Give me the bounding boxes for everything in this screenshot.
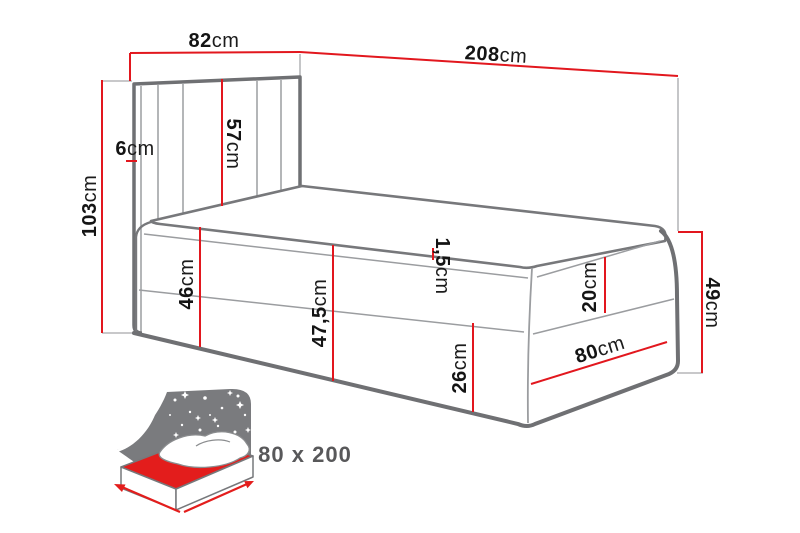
dim-seat-height-head-unit: cm [176,259,198,287]
dim-side-thickness-label: 6cm [115,139,154,159]
dim-total-height-value: 103 [79,202,101,237]
dim-mattress-band-unit: cm [579,262,601,290]
dim-total-length-label: 208cm [464,43,528,67]
dim-base-height-unit: cm [449,343,471,371]
dim-footboard-height-value: 49 [701,278,723,301]
dim-seat-height-foot-value: 47,5 [309,306,331,347]
dim-headboard-width-unit: cm [212,30,240,52]
dim-base-height-value: 26 [449,370,471,393]
dim-seat-height-head-value: 46 [176,286,198,309]
dim-total-height-label: 103cm [80,175,100,238]
corner-edge [528,268,532,423]
dim-side-thickness-value: 6 [115,138,127,160]
dim-seat-height-foot-label: 47,5cm [310,279,330,348]
bed-dimension-diagram: 82cm 208cm 103cm 6cm 57cm 46cm 47,5cm 1,… [0,0,800,533]
dim-footboard-height-label: 49cm [702,278,722,329]
bed-size-badge: 80 x 200 [258,442,352,468]
dim-mattress-band-value: 20 [579,289,601,312]
dim-seat-height-head-label: 46cm [177,259,197,310]
bed-size-icon [114,389,254,512]
front-left-edge [136,222,151,333]
dim-total-length-unit: cm [499,44,528,68]
dim-headboard-width-value: 82 [189,30,212,52]
dim-headboard-height-label: 57cm [223,119,243,170]
bed-diagram-drawing [0,0,800,533]
dim-mattress-band-label: 20cm [580,262,600,313]
mattress-top-surface [151,186,666,268]
dim-piping-height-unit: cm [431,267,453,295]
dim-headboard-width-label: 82cm [189,31,240,51]
dim-total-height-unit: cm [79,175,101,203]
dim-piping-height-label: 1,5cm [432,238,452,295]
dim-footboard-height-unit: cm [701,301,723,329]
dim-piping-height-value: 1,5 [431,238,453,267]
dim-base-height-label: 26cm [450,343,470,394]
dim-headboard-height-value: 57 [222,119,244,142]
dim-headboard-height-unit: cm [222,142,244,170]
dim-side-thickness-unit: cm [127,138,155,160]
dim-total-length-value: 208 [464,42,500,66]
dim-seat-height-foot-unit: cm [309,279,331,307]
